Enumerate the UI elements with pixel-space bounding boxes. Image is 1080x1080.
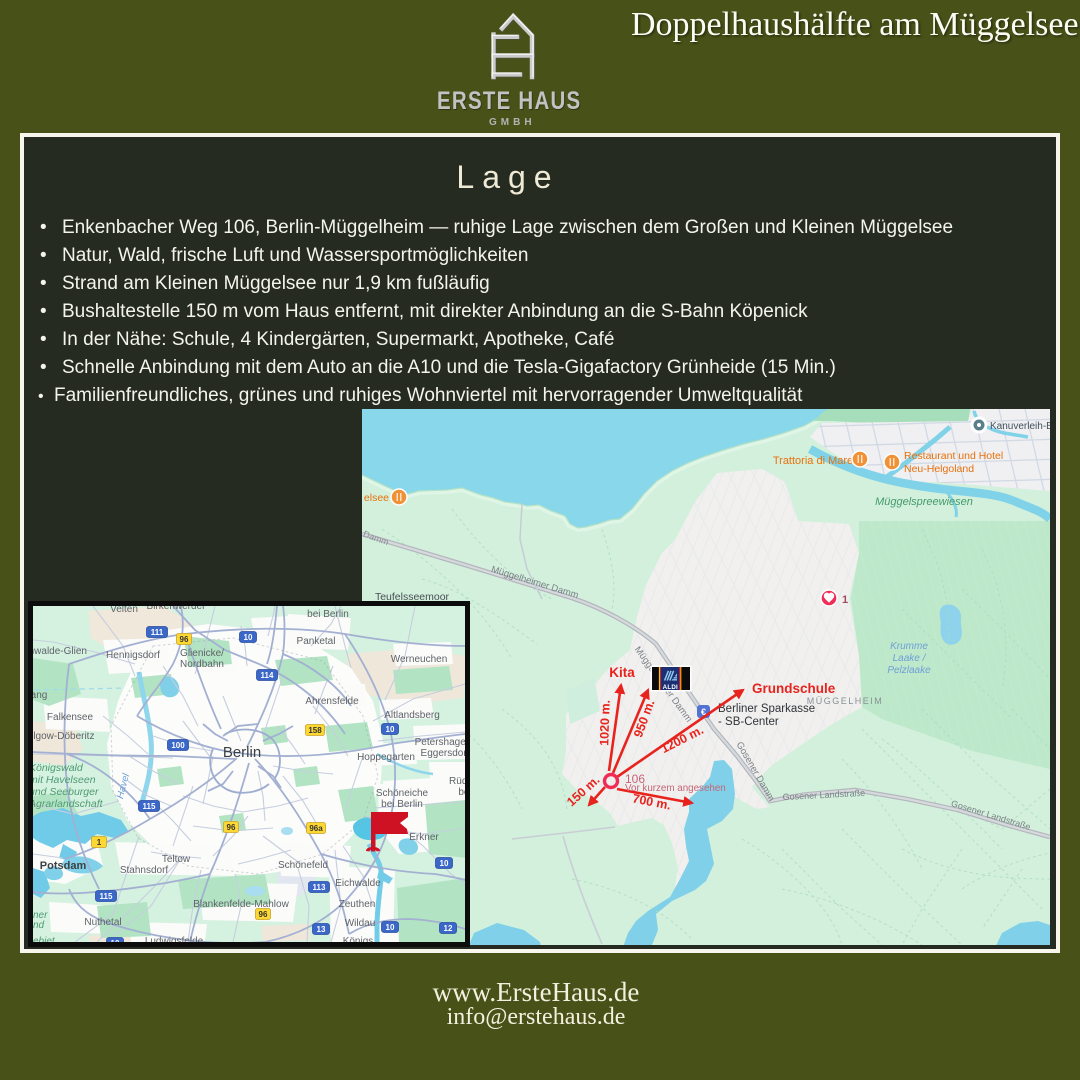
svg-text:96: 96 bbox=[259, 910, 268, 919]
svg-text:Glienicke/: Glienicke/ bbox=[180, 648, 224, 659]
svg-text:Zeuthen: Zeuthen bbox=[339, 899, 376, 910]
svg-text:1: 1 bbox=[842, 594, 848, 606]
svg-text:13: 13 bbox=[317, 925, 326, 934]
svg-text:Berlin: Berlin bbox=[223, 744, 261, 761]
svg-text:Stahnsdorf: Stahnsdorf bbox=[120, 865, 169, 876]
svg-text:Potsdam: Potsdam bbox=[40, 860, 87, 872]
svg-text:allgow-Döberitz: allgow-Döberitz bbox=[28, 731, 94, 742]
svg-text:Petershagen: Petershagen bbox=[415, 737, 470, 748]
svg-text:114: 114 bbox=[261, 671, 274, 680]
svg-text:ALDI: ALDI bbox=[663, 684, 678, 691]
svg-text:Neu-Helgoland: Neu-Helgoland bbox=[904, 463, 974, 475]
svg-text:ang: ang bbox=[31, 690, 48, 701]
svg-text:Erkner: Erkner bbox=[409, 832, 439, 843]
svg-text:Werneuchen: Werneuchen bbox=[391, 654, 448, 665]
svg-text:Hoppegarten: Hoppegarten bbox=[357, 752, 415, 763]
svg-text:100: 100 bbox=[171, 741, 185, 750]
svg-text:Grundschule: Grundschule bbox=[752, 681, 836, 696]
svg-text:nd: nd bbox=[33, 920, 45, 931]
svg-text:Teltow: Teltow bbox=[162, 854, 191, 865]
svg-text:Nuthetal: Nuthetal bbox=[84, 917, 121, 928]
svg-text:115: 115 bbox=[100, 892, 113, 901]
svg-text:Restaurant und Hotel: Restaurant und Hotel bbox=[904, 450, 1003, 462]
svg-text:Pelzlaake: Pelzlaake bbox=[887, 665, 931, 676]
svg-text:158: 158 bbox=[308, 726, 322, 735]
svg-text:115: 115 bbox=[143, 802, 156, 811]
svg-text:Kita: Kita bbox=[609, 665, 635, 680]
svg-text:Müggelspreewiesen: Müggelspreewiesen bbox=[875, 496, 973, 508]
svg-text:önwalde-Glien: önwalde-Glien bbox=[28, 646, 87, 657]
svg-text:Königswald: Königswald bbox=[29, 762, 84, 774]
svg-text:1020 m.: 1020 m. bbox=[597, 700, 613, 746]
svg-text:Agrarlandschaft: Agrarlandschaft bbox=[28, 798, 104, 810]
svg-text:96: 96 bbox=[180, 635, 189, 644]
svg-text:Trattoria di Mare: Trattoria di Mare bbox=[773, 455, 853, 467]
svg-text:mit Havelseen: mit Havelseen bbox=[29, 774, 96, 786]
svg-text:Falkensee: Falkensee bbox=[47, 712, 94, 723]
svg-text:Panketal: Panketal bbox=[297, 636, 336, 647]
svg-text:1: 1 bbox=[97, 838, 102, 847]
svg-text:10: 10 bbox=[440, 859, 449, 868]
svg-text:elsee: elsee bbox=[364, 492, 389, 504]
svg-text:Hennigsdorf: Hennigsdorf bbox=[106, 650, 160, 661]
svg-text:Kanuverleih-Be: Kanuverleih-Be bbox=[990, 421, 1050, 432]
svg-text:96: 96 bbox=[227, 823, 236, 832]
svg-text:Blankenfelde-Mahlow: Blankenfelde-Mahlow bbox=[193, 899, 289, 910]
svg-text:Ahrensfelde: Ahrensfelde bbox=[305, 696, 359, 707]
svg-text:Nordbahn: Nordbahn bbox=[180, 659, 224, 670]
svg-text:96a: 96a bbox=[309, 824, 323, 833]
svg-text:bei Berlin: bei Berlin bbox=[381, 799, 423, 810]
svg-text:113: 113 bbox=[313, 883, 326, 892]
svg-text:- SB-Center: - SB-Center bbox=[718, 716, 779, 728]
svg-text:Laake /: Laake / bbox=[893, 653, 927, 664]
svg-text:Eggersdorf: Eggersdorf bbox=[421, 748, 470, 759]
svg-text:und Seeburger: und Seeburger bbox=[29, 786, 99, 798]
svg-text:Berliner Sparkasse: Berliner Sparkasse bbox=[718, 703, 815, 715]
svg-text:10: 10 bbox=[386, 725, 395, 734]
svg-text:Wildau: Wildau bbox=[345, 918, 376, 929]
svg-text:Schönefeld: Schönefeld bbox=[278, 860, 328, 871]
svg-text:MÜGGELHEIM: MÜGGELHEIM bbox=[807, 696, 884, 706]
svg-text:Altlandsberg: Altlandsberg bbox=[384, 710, 440, 721]
svg-text:10: 10 bbox=[244, 633, 253, 642]
svg-text:111: 111 bbox=[151, 628, 164, 637]
svg-text:Eichwalde: Eichwalde bbox=[335, 878, 381, 889]
svg-text:bei Berlin: bei Berlin bbox=[307, 609, 349, 620]
svg-text:Schöneiche: Schöneiche bbox=[376, 788, 429, 799]
svg-text:Krumme: Krumme bbox=[890, 641, 928, 652]
svg-text:10: 10 bbox=[386, 923, 395, 932]
svg-text:12: 12 bbox=[444, 924, 453, 933]
